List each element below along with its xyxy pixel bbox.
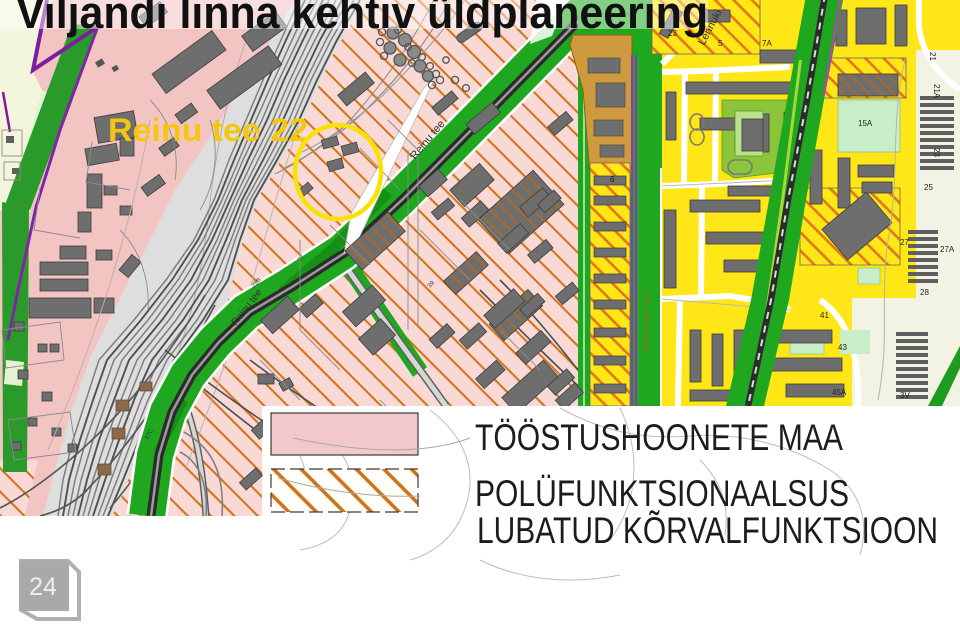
svg-text:28: 28 <box>920 288 929 297</box>
svg-text:41: 41 <box>820 311 829 320</box>
svg-text:25: 25 <box>924 183 933 192</box>
svg-text:15A: 15A <box>858 119 873 128</box>
svg-text:Viljandi linna kehtiv üldplane: Viljandi linna kehtiv üldplaneering <box>16 0 708 38</box>
svg-text:27A: 27A <box>940 245 955 254</box>
svg-text:POLÜFUNKTSIONAALSUS: POLÜFUNKTSIONAALSUS <box>475 473 849 514</box>
svg-text:27: 27 <box>900 238 909 247</box>
svg-text:3V: 3V <box>900 391 910 400</box>
svg-text:7A: 7A <box>762 39 772 48</box>
svg-text:TÖÖSTUSHOONETE MAA: TÖÖSTUSHOONETE MAA <box>475 417 843 458</box>
svg-text:21: 21 <box>928 52 937 61</box>
svg-text:5: 5 <box>718 39 723 48</box>
svg-text:24: 24 <box>29 573 57 601</box>
svg-text:45A: 45A <box>832 388 847 397</box>
svg-text:6: 6 <box>610 175 615 184</box>
svg-text:21A: 21A <box>932 84 941 99</box>
svg-text:43: 43 <box>838 343 847 352</box>
svg-text:LUBATUD KÕRVALFUNKTSIOON: LUBATUD KÕRVALFUNKTSIOON <box>477 510 938 551</box>
svg-text:Männimäe tee: Männimäe tee <box>641 292 652 352</box>
svg-text:Reinu tee 22: Reinu tee 22 <box>108 112 308 148</box>
svg-text:23: 23 <box>932 148 941 157</box>
